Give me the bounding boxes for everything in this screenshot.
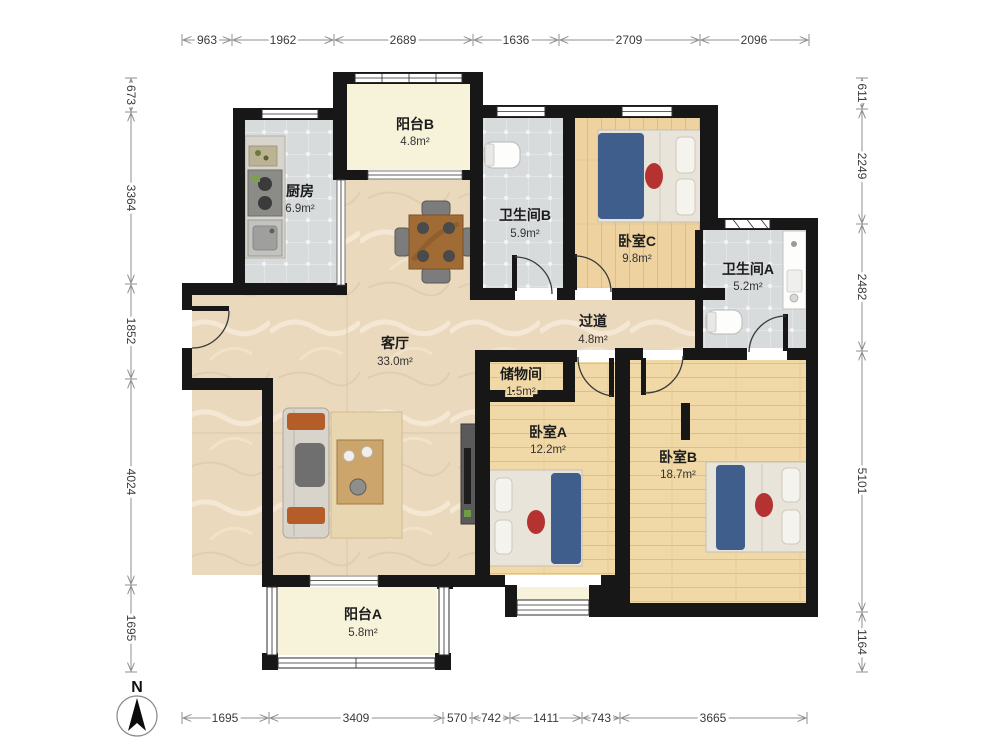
dim-left-0: 673 — [124, 85, 138, 105]
dim-bottom-6: 3665 — [700, 711, 727, 725]
sofa-pillow — [287, 507, 325, 524]
coffee-table — [337, 440, 383, 504]
bath-a-shower — [783, 231, 806, 309]
balcony-b-window — [355, 74, 462, 83]
bed-blanket — [716, 465, 745, 550]
dim-top-2: 2689 — [390, 33, 417, 47]
dimensions-top: 963 1962 2689 1636 2709 2096 — [182, 33, 809, 47]
dim-bottom-3: 742 — [481, 711, 501, 725]
dim-bottom-4: 1411 — [533, 711, 559, 725]
balcony-b-label: 阳台B — [396, 116, 434, 132]
bed-accent — [527, 510, 545, 534]
dimensions-left: 673 3364 1852 4024 1695 — [124, 78, 138, 672]
cutting-board — [249, 146, 277, 166]
bath-b-label: 卫生间B — [499, 207, 551, 223]
dim-bottom-1: 3409 — [343, 711, 370, 725]
dim-top-1: 1962 — [270, 33, 297, 47]
balcony-b-area: 4.8m² — [400, 136, 430, 148]
bath-a-area: 5.2m² — [733, 281, 763, 293]
storage-label: 储物间 — [499, 366, 542, 382]
floor-plan-canvas: 阳台B 4.8m² 厨房 6.9m² 卫生间B 5.9m² 卧室C 9.8m² … — [0, 0, 1000, 750]
balcony-a-window-right — [439, 587, 449, 655]
bath-b-area: 5.9m² — [510, 228, 540, 240]
pillow — [495, 478, 512, 512]
bedroom-c-bed — [598, 130, 702, 222]
dim-left-3: 4024 — [124, 469, 138, 496]
dim-right-0: 611 — [855, 83, 869, 102]
compass: N — [117, 679, 157, 736]
dimensions-right: 611 2249 2482 5101 1164 — [855, 78, 869, 672]
pillow — [782, 510, 800, 544]
bed-accent — [755, 493, 773, 517]
bed-blanket — [598, 133, 644, 219]
dim-right-1: 2249 — [855, 153, 869, 180]
bedroom-c-area: 9.8m² — [622, 253, 652, 265]
bedroom-b-bed — [706, 462, 808, 552]
living-area: 33.0m² — [377, 356, 413, 368]
dim-left-4: 1695 — [124, 615, 138, 642]
dim-bottom-0: 1695 — [212, 711, 239, 725]
balcony-a-label: 阳台A — [344, 606, 382, 622]
pillow — [495, 520, 512, 554]
dim-top-3: 1636 — [503, 33, 530, 47]
hallway-label: 过道 — [579, 313, 607, 329]
bedroom-c-label: 卧室C — [618, 233, 656, 249]
dim-left-2: 1852 — [124, 318, 138, 345]
bedroom-b-label: 卧室B — [659, 449, 697, 465]
balcony-a-window-bottom — [278, 658, 435, 668]
bedroom-b-area: 18.7m² — [660, 469, 696, 481]
dim-top-4: 2709 — [616, 33, 643, 47]
bath-b-toilet — [484, 142, 520, 168]
floor-plan-page: 阳台B 4.8m² 厨房 6.9m² 卫生间B 5.9m² 卧室C 9.8m² … — [0, 0, 1000, 750]
kitchen-counter — [245, 136, 285, 258]
dim-top-5: 2096 — [741, 33, 768, 47]
bedroom-a-label: 卧室A — [529, 424, 567, 440]
bed-accent — [645, 163, 663, 189]
balcony-a-window-left — [267, 587, 277, 655]
pillow — [676, 179, 695, 215]
dimensions-bottom: 1695 3409 570 742 1411 743 3665 — [182, 711, 807, 725]
tv-unit — [461, 424, 477, 524]
living-label: 客厅 — [380, 335, 409, 351]
dim-top-0: 963 — [197, 33, 217, 47]
balcony-a-area: 5.8m² — [348, 627, 378, 639]
dim-bottom-2: 570 — [447, 711, 467, 725]
hallway-area: 4.8m² — [578, 334, 608, 346]
kitchen-label: 厨房 — [286, 183, 314, 199]
sofa — [283, 408, 329, 538]
kitchen-window — [262, 110, 318, 119]
bedroom-a-bed — [488, 470, 582, 566]
storage-area: 1.5m² — [506, 386, 536, 398]
sofa-pillow — [287, 413, 325, 430]
bedroom-a-bay-window — [517, 600, 589, 615]
dim-right-3: 5101 — [855, 468, 869, 495]
dining-chair — [422, 201, 450, 216]
sofa-blanket — [295, 443, 325, 487]
bed-blanket — [551, 473, 581, 564]
bedroom-c-window — [622, 107, 672, 117]
compass-north-label: N — [131, 679, 143, 696]
dim-bottom-5: 743 — [591, 711, 611, 725]
compass-needle-icon — [128, 698, 146, 731]
dining-chair — [422, 268, 450, 283]
pillow — [782, 468, 800, 502]
tv-screen — [464, 448, 471, 504]
dim-right-4: 1164 — [855, 629, 869, 655]
dim-left-1: 3364 — [124, 185, 138, 212]
dining-chair — [395, 228, 410, 256]
bath-b-window — [497, 107, 545, 117]
bedroom-a-area: 12.2m² — [530, 444, 566, 456]
bath-a-window — [725, 220, 770, 229]
bath-a-label: 卫生间A — [722, 261, 774, 277]
kitchen-area: 6.9m² — [285, 203, 315, 215]
bath-a-toilet — [706, 310, 742, 334]
dim-right-2: 2482 — [855, 274, 869, 301]
pillow — [676, 137, 695, 173]
